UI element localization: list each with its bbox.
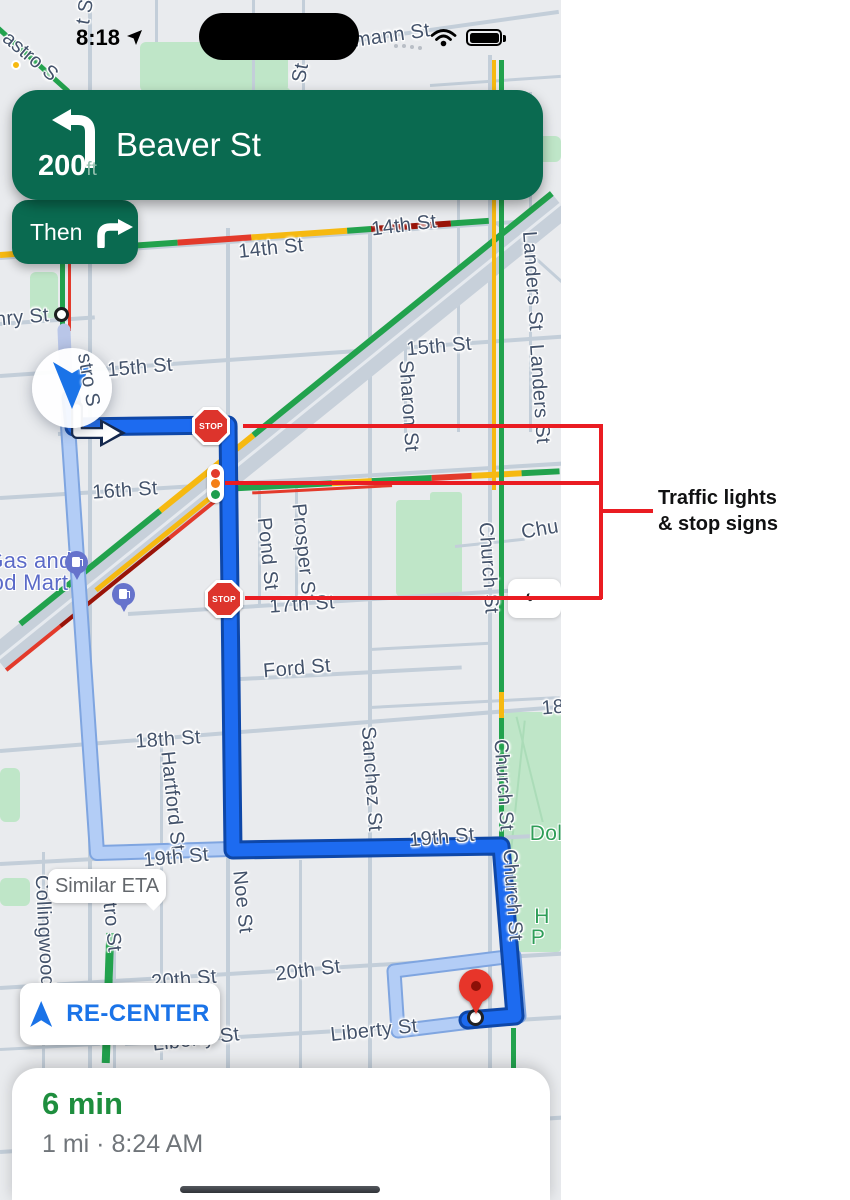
- similar-eta-label: Similar ETA: [55, 875, 159, 898]
- stop-sign-icon: STOP: [192, 407, 230, 445]
- stop-sign-text: STOP: [212, 594, 236, 604]
- dynamic-island: [199, 13, 359, 60]
- map-label: od Mart: [0, 570, 68, 596]
- turn-right-icon: [92, 216, 136, 248]
- wifi-icon: [430, 27, 458, 47]
- phone-screenshot: astro St StStmann St14th St14th StLander…: [0, 0, 561, 1200]
- clock-time: 8:18: [60, 25, 120, 51]
- status-bar: 8:18: [0, 0, 561, 62]
- callout-line: [245, 596, 602, 600]
- map-label: 16th St: [92, 477, 159, 505]
- map-label: P: [531, 926, 545, 950]
- callout-text-line1: Traffic lights: [658, 485, 778, 511]
- trip-eta: 6 min: [42, 1086, 123, 1122]
- callout-line: [225, 481, 602, 485]
- then-label: Then: [30, 219, 82, 246]
- annotated-screenshot: astro St StStmann St14th St14th StLander…: [0, 0, 850, 1200]
- callout-connector: [601, 509, 653, 513]
- callout-text-line2: & stop signs: [658, 511, 778, 537]
- then-maneuver-chip[interactable]: Then: [12, 200, 138, 264]
- map-label: St: [288, 61, 314, 84]
- location-services-icon: [127, 30, 142, 45]
- recenter-label: RE-CENTER: [66, 1000, 210, 1028]
- traffic-light-icon: [207, 464, 224, 503]
- callout-text: Traffic lights & stop signs: [658, 485, 778, 537]
- map-label: Dol: [530, 822, 561, 846]
- distance-to-turn: 200ft: [38, 150, 97, 183]
- stop-sign-icon: STOP: [205, 580, 243, 618]
- navigation-banner[interactable]: Beaver St 200ft: [12, 90, 543, 200]
- stop-sign-text: STOP: [199, 421, 223, 431]
- map-label: 18: [541, 696, 561, 721]
- map-label: nry St: [0, 304, 50, 332]
- map-label: 18th St: [135, 726, 202, 754]
- next-street-name: Beaver St: [116, 126, 261, 164]
- recenter-arrow-icon: [30, 1001, 52, 1027]
- recenter-button[interactable]: RE-CENTER: [20, 983, 220, 1045]
- distance-unit: ft: [86, 159, 97, 180]
- callout-line: [243, 424, 602, 428]
- gas-station-pin-icon[interactable]: [112, 583, 135, 613]
- similar-eta-bubble[interactable]: Similar ETA: [48, 869, 166, 903]
- destination-pin-icon[interactable]: [459, 969, 493, 1019]
- trip-summary-card[interactable]: 6 min 1 mi · 8:24 AM: [12, 1068, 550, 1200]
- battery-icon: [466, 29, 502, 46]
- home-indicator[interactable]: [180, 1186, 380, 1193]
- trip-details: 1 mi · 8:24 AM: [42, 1130, 203, 1159]
- gas-station-pin-icon[interactable]: [65, 551, 88, 581]
- intersection-dot: [54, 307, 69, 322]
